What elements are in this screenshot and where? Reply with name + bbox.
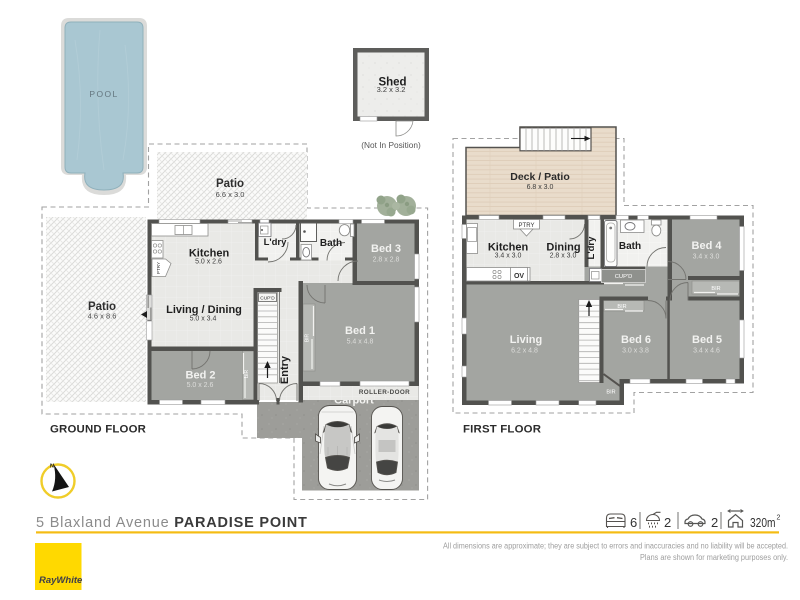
svg-text:4.6 x 8.6: 4.6 x 8.6 [88,312,117,321]
svg-text:Bath: Bath [320,238,342,249]
svg-text:3.4 x 3.0: 3.4 x 3.0 [693,254,720,261]
svg-text:All dimensions are approximate: All dimensions are approximate; they are… [443,542,788,551]
svg-text:Patio: Patio [216,178,244,190]
svg-text:BIR: BIR [711,286,720,292]
svg-text:2.8 x 3.0: 2.8 x 3.0 [550,253,577,260]
svg-text:GROUND FLOOR: GROUND FLOOR [50,424,146,436]
svg-text:2: 2 [711,515,718,530]
svg-text:Living / Dining: Living / Dining [166,304,242,316]
svg-text:BIR: BIR [606,390,615,396]
svg-text:RayWhite: RayWhite [39,575,83,586]
svg-text:ROLLER-DOOR: ROLLER-DOOR [359,389,410,396]
svg-text:BIR: BIR [617,304,626,310]
svg-text:6.2 x 4.8: 6.2 x 4.8 [511,348,538,355]
svg-text:OV: OV [514,273,524,280]
svg-text:3.2 x 3.2: 3.2 x 3.2 [377,85,406,94]
svg-text:CUP'D: CUP'D [615,274,633,280]
svg-text:3.4 x 3.0: 3.4 x 3.0 [495,253,522,260]
svg-text:N: N [50,464,54,470]
svg-text:Bed 2: Bed 2 [186,370,216,382]
svg-text:L'dry: L'dry [586,236,597,260]
svg-text:320m: 320m [750,515,776,530]
svg-text:POOL: POOL [89,89,118,99]
svg-text:Entry: Entry [279,355,291,384]
svg-text:5.0 x 3.4: 5.0 x 3.4 [190,316,217,323]
svg-text:Bed 1: Bed 1 [345,325,375,337]
svg-text:Plans are shown for marketing: Plans are shown for marketing purposes o… [640,553,788,562]
svg-text:Bed 6: Bed 6 [621,334,651,346]
svg-text:(Not In Position): (Not In Position) [361,140,421,150]
svg-text:2.8 x 2.8: 2.8 x 2.8 [373,257,400,264]
svg-text:5.0 x 2.6: 5.0 x 2.6 [187,382,214,389]
svg-text:2: 2 [664,515,671,530]
svg-text:3.4 x 4.6: 3.4 x 4.6 [693,348,720,355]
svg-text:Bath: Bath [619,241,641,252]
svg-text:Living: Living [510,334,542,346]
svg-text:L'dry: L'dry [264,237,288,248]
svg-text:5.0 x 2.6: 5.0 x 2.6 [195,259,222,266]
svg-text:6: 6 [630,515,637,530]
svg-text:Bed 5: Bed 5 [692,334,722,346]
svg-text:3.0 x 3.8: 3.0 x 3.8 [622,348,649,355]
svg-text:PTRY: PTRY [519,223,535,229]
svg-text:PTRY: PTRY [156,262,161,274]
svg-text:BIR: BIR [244,369,250,378]
svg-text:6.8 x 3.0: 6.8 x 3.0 [527,184,554,191]
svg-text:6.6 x 3.0: 6.6 x 3.0 [216,190,245,199]
svg-text:2: 2 [777,515,781,522]
svg-text:5 Blaxland Avenue PARADISE POI: 5 Blaxland Avenue PARADISE POINT [36,515,308,531]
svg-text:FIRST FLOOR: FIRST FLOOR [463,424,541,436]
svg-text:Bed 3: Bed 3 [371,243,401,255]
svg-text:Bed 4: Bed 4 [692,240,723,252]
svg-text:5.4 x 4.8: 5.4 x 4.8 [347,339,374,346]
svg-text:Deck / Patio: Deck / Patio [510,171,570,183]
svg-text:CUP'D: CUP'D [260,296,275,302]
svg-text:BIR: BIR [305,333,311,342]
